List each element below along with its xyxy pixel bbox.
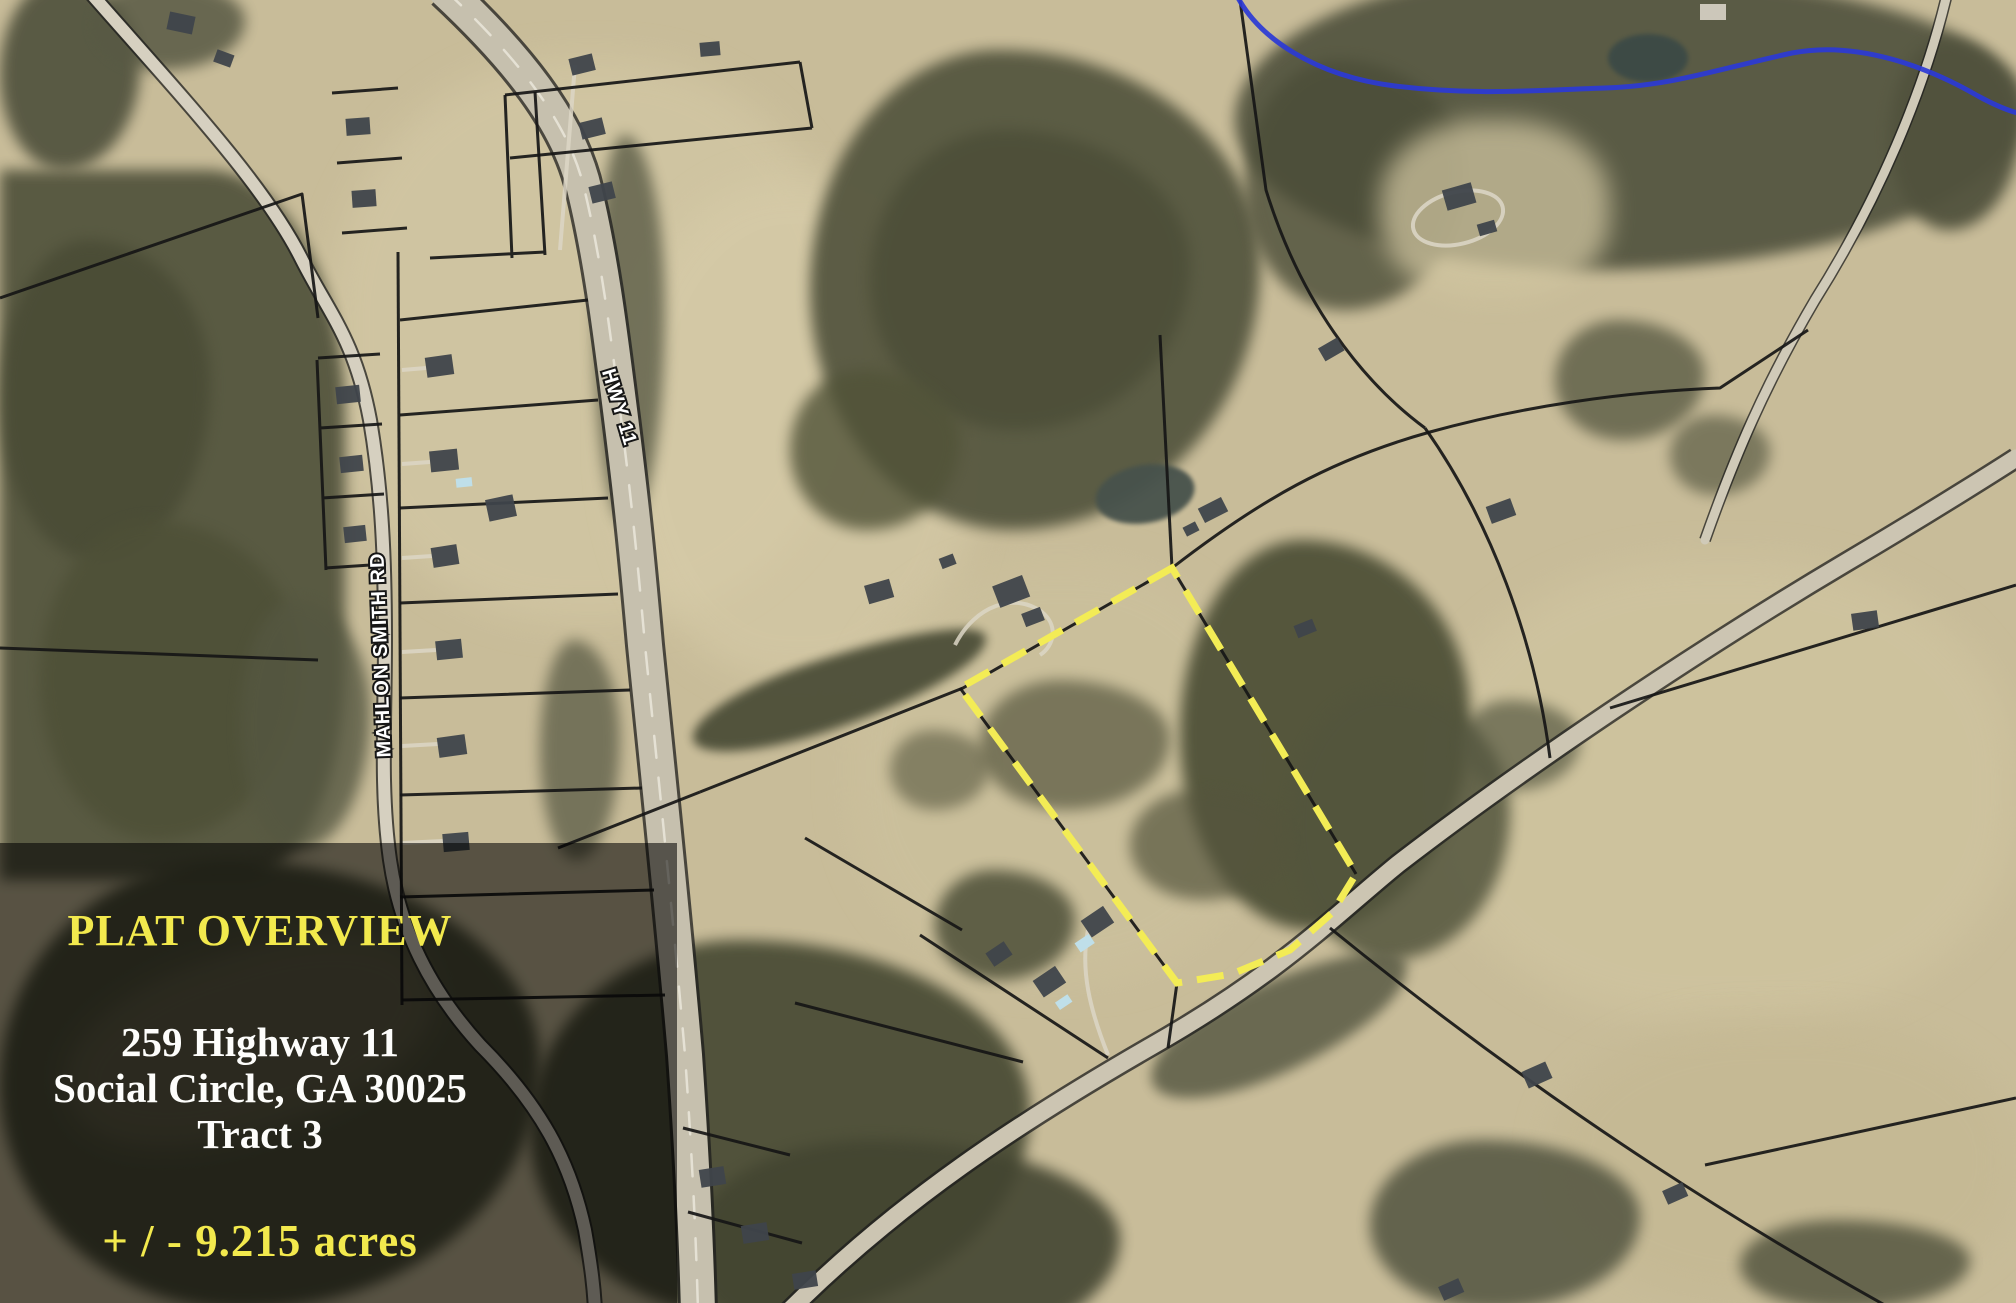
address-line-1: 259 Highway 11 — [0, 1019, 520, 1065]
info-overlay-panel: PLAT OVERVIEW 259 Highway 11 Social Circ… — [0, 843, 677, 1303]
plat-title: PLAT OVERVIEW — [0, 903, 520, 959]
frontage-road — [788, 458, 2016, 1303]
address-line-3: Tract 3 — [0, 1111, 520, 1157]
address-line-2: Social Circle, GA 30025 — [0, 1065, 520, 1111]
plat-overview-map: MAHLON SMITH RD HWY 11 PLAT OVERVIEW 259… — [0, 0, 2016, 1303]
acreage-label: + / - 9.215 acres — [0, 1215, 520, 1267]
address-block: 259 Highway 11 Social Circle, GA 30025 T… — [0, 1019, 520, 1157]
info-overlay-text: PLAT OVERVIEW 259 Highway 11 Social Circ… — [0, 843, 520, 1267]
stream-line — [1236, 0, 2016, 114]
